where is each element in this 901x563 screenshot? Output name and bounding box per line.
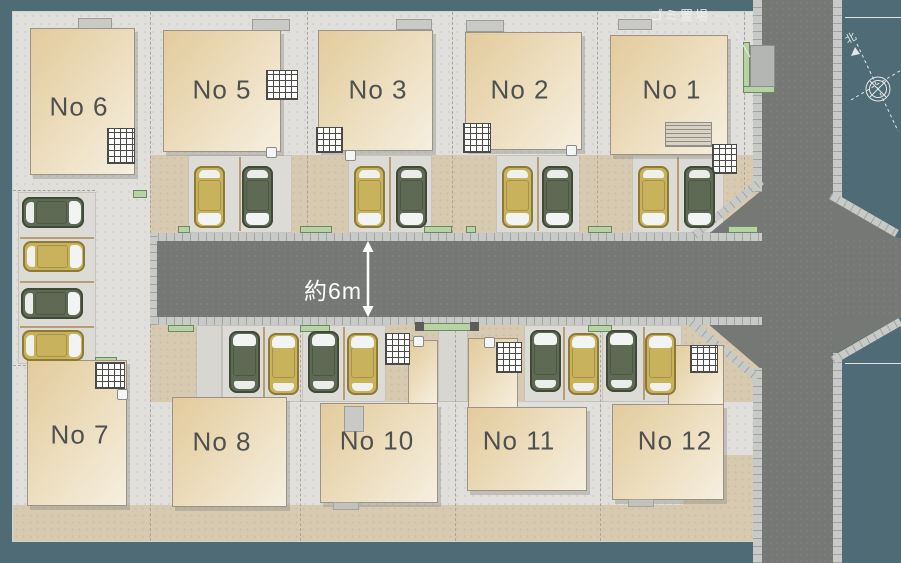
entrance-no7 [117,389,128,400]
car-icon-green [396,166,427,228]
entrance-no3 [345,150,356,161]
stall-divider [343,327,345,400]
car-icon-green [606,330,637,392]
stall-divider [563,327,565,400]
planting-strip [178,226,190,233]
lot-label-no2: No 2 [491,75,550,106]
lot-label-no10: No 10 [340,426,414,457]
car-icon-gold [354,166,385,228]
boundary-line [845,17,901,18]
planting-strip [424,226,452,233]
entrance-step [628,499,654,507]
entrance-step [333,502,359,510]
planting-strip [133,190,147,198]
balcony-no7 [95,362,125,389]
balcony-no2 [463,123,491,153]
planting-strip [728,226,758,233]
car-icon-gold [194,166,225,228]
stall-divider [263,327,265,400]
car-icon-gold [23,241,85,272]
car-icon-gold [347,333,378,395]
car-icon-gold [268,333,299,395]
stall-divider [20,326,94,328]
entrance-no5 [266,147,277,158]
planting-strip [168,325,194,332]
roof-structure [396,19,432,30]
stall-divider [20,237,94,239]
curb [753,368,762,563]
curb [150,233,762,241]
compass-icon: 北 [843,30,901,131]
car-icon-gold [568,333,599,395]
car-icon-green [684,166,715,228]
lot-label-no5: No 5 [193,75,252,106]
car-icon-green [229,331,260,393]
lot-label-no7: No 7 [51,420,110,451]
balcony-no6 [107,128,135,164]
car-icon-gold [502,166,533,228]
lot-label-no6: No 6 [50,92,109,123]
planter-cap [415,322,424,331]
car-icon-green [530,330,561,392]
car-icon-green [308,331,339,393]
car-icon-gold [645,333,676,395]
car-icon-gold [638,166,669,228]
roof-structure [618,19,652,30]
lot-boundary [600,325,601,541]
planting-strip [300,226,332,233]
car-icon-green [542,166,573,228]
boundary-line [845,363,901,364]
balcony-no12 [690,345,718,373]
car-icon-green [242,166,273,228]
stall-divider [20,281,94,283]
stall-divider [239,157,241,231]
roof-structure [466,20,504,32]
road-horizontal [150,241,762,317]
stall-divider [537,157,539,231]
curb [833,353,842,563]
lot-label-no11: No 11 [483,426,555,457]
lot-boundary [307,12,308,233]
north-label: 北 [843,30,859,47]
car-icon-green [22,197,84,228]
lot-label-no8: No 8 [193,427,252,458]
lot-boundary [452,12,453,233]
site-plan-diagram: No 6 No 5 No 3 No 2 No 1 No 7 No 8 No 10… [0,0,901,563]
trash-pad-green [743,86,775,93]
car-icon-gold [22,330,84,361]
lot-boundary [13,190,95,191]
planting-strip [466,226,476,233]
balcony-no5 [266,70,298,100]
terrace-no1 [665,122,712,147]
curb [833,0,842,200]
balcony-no11 [496,342,522,373]
lot-label-no1: No 1 [643,75,702,106]
lot-boundary [300,325,301,541]
curb [150,233,157,325]
lot-label-no12: No 12 [638,426,712,457]
lot-boundary [455,325,456,541]
lot-boundary [744,12,745,190]
stall-divider [389,157,391,231]
road-width-label: 約6m [296,272,362,306]
balcony-no10 [385,333,410,365]
entrance-no11 [484,337,495,348]
lot-label-no3: No 3 [349,75,408,106]
road-stub-east [833,238,901,318]
car-icon-green [21,288,83,319]
balcony-no3 [316,127,343,153]
lot-boundary [150,325,151,541]
trash-area-label: ゴミ置場 [650,5,710,24]
walkway-center [438,330,468,402]
balcony-no1 [712,144,737,174]
curb [753,0,762,192]
house-no10-wing [408,340,438,405]
entrance-no2 [566,145,577,156]
planter-cap [470,322,479,331]
trash-area-pad [750,45,775,87]
lot-boundary [597,12,598,233]
walkway-no8 [196,325,222,402]
planting-strip [588,226,612,233]
lot-boundary [150,12,151,233]
south-garden-strip [13,505,762,541]
entrance-no10 [413,336,424,347]
stall-divider [677,157,679,231]
